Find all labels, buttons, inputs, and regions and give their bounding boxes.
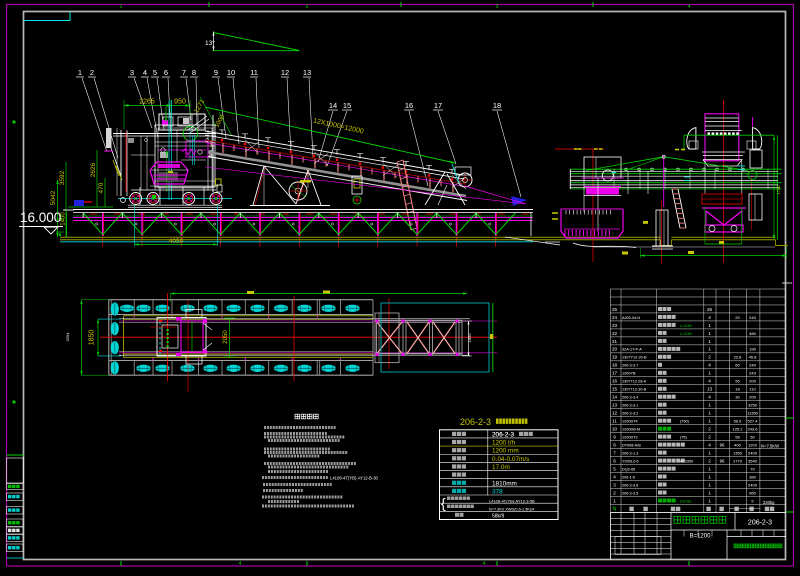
svg-text:206-3-3.7: 206-3-3.7 [622,364,638,368]
svg-text:(75): (75) [680,436,687,440]
svg-text:4: 4 [708,395,711,400]
svg-text:6: 6 [164,68,168,77]
svg-text:1200YB: 1200YB [622,372,636,376]
svg-text:DTII08-A/B: DTII08-A/B [622,444,641,448]
svg-text:1: 1 [708,482,711,487]
svg-text:L=10M: L=10M [680,324,692,328]
svg-text:L4108-4T(YB)-AY12-B-30: L4108-4T(YB)-AY12-B-30 [330,476,379,481]
svg-text:3: 3 [130,68,134,77]
svg-text:3540: 3540 [748,458,758,463]
svg-text:1200DT4: 1200DT4 [622,420,638,424]
svg-text:2: 2 [708,435,711,440]
svg-text:8: 8 [613,443,616,448]
svg-text:1: 1 [708,347,711,352]
svg-text:1450: 1450 [61,212,67,226]
svg-text:0.04-0.07m/s: 0.04-0.07m/s [492,456,529,463]
svg-text:2400: 2400 [748,450,758,455]
svg-text:15: 15 [612,387,618,392]
svg-text:1: 1 [708,450,711,455]
svg-text:15: 15 [343,101,351,110]
svg-text:11: 11 [250,68,258,77]
svg-text:4050: 4050 [169,238,184,245]
svg-text:4: 4 [708,443,711,448]
svg-text:1202: 1202 [748,443,758,448]
svg-text:17: 17 [434,101,442,110]
svg-text:11350: 11350 [747,411,759,416]
svg-text:60: 60 [735,363,740,368]
svg-text:206-2-3.4: 206-2-3.4 [622,396,638,400]
svg-text:950: 950 [174,99,186,106]
svg-text:110: 110 [749,387,756,392]
svg-text:(750): (750) [680,420,690,424]
svg-text:3250: 3250 [748,403,758,408]
svg-text:13: 13 [612,403,618,408]
svg-text:20: 20 [612,347,618,352]
svg-text:13°: 13° [205,39,215,47]
svg-text:220kg: 220kg [763,500,775,505]
svg-text:206-2-1.3: 206-2-1.3 [622,451,638,455]
svg-text:7: 7 [182,68,186,77]
svg-text:17: 17 [612,371,618,376]
svg-text:A=3350: A=3350 [680,459,693,463]
svg-text:24: 24 [612,315,618,320]
svg-text:2: 2 [306,4,309,10]
svg-text:14: 14 [612,395,618,400]
svg-text:9: 9 [214,68,218,77]
svg-text:17.0m: 17.0m [492,464,510,471]
svg-text:243.6: 243.6 [747,427,758,432]
svg-text:206-2-3: 206-2-3 [748,520,772,527]
svg-text:3: 3 [496,4,499,10]
svg-text:5042: 5042 [50,190,57,205]
svg-text:10: 10 [612,427,618,432]
svg-text:5: 5 [613,466,616,471]
svg-text:206-2-3: 206-2-3 [460,417,491,427]
svg-text:N=7.5KW: N=7.5KW [761,444,779,449]
svg-text:4: 4 [688,4,691,10]
svg-text:22.8: 22.8 [734,355,743,360]
svg-text:1: 1 [708,466,711,471]
svg-text:200: 200 [749,395,756,400]
svg-text:1307T12-30-B: 1307T12-30-B [622,388,647,392]
svg-text:1: 1 [708,411,711,416]
svg-text:1750: 1750 [776,185,781,195]
svg-text:2265: 2265 [139,99,155,106]
svg-text:2: 2 [708,458,711,463]
svg-text:N=7.3KV XWD(0.5-1.5K)/4: N=7.3KV XWD(0.5-1.5K)/4 [489,507,534,511]
svg-text:206-2-3.5: 206-2-3.5 [622,491,638,495]
svg-text:1: 1 [708,474,711,479]
svg-text:58k/9: 58k/9 [492,514,504,520]
svg-text:N: N [613,506,617,512]
svg-text:56: 56 [735,379,740,384]
svg-text:23: 23 [612,323,618,328]
svg-text:16: 16 [612,379,618,384]
svg-text:1307Y12-20-B: 1307Y12-20-B [622,356,647,360]
svg-text:45.8: 45.8 [749,355,758,360]
svg-text:50: 50 [750,435,755,440]
svg-text:25: 25 [612,307,618,312]
svg-text:480: 480 [749,331,756,336]
svg-text:1200DT2: 1200DT2 [622,436,638,440]
svg-text:4: 4 [708,379,711,384]
svg-text:206-2-3.6: 206-2-3.6 [622,483,638,487]
svg-text:2: 2 [613,490,616,495]
svg-text:B=1200: B=1200 [690,534,712,540]
svg-text:22: 22 [612,331,618,336]
svg-text:1: 1 [708,403,711,408]
svg-text:11: 11 [612,419,617,424]
svg-text:3: 3 [613,482,616,487]
svg-text:21: 21 [612,339,618,344]
svg-text:1: 1 [708,339,711,344]
svg-text:1: 1 [708,371,711,376]
svg-text:240: 240 [749,315,756,320]
svg-text:DG-6a: DG-6a [680,499,692,503]
svg-text:20: 20 [735,315,740,320]
svg-text:1200 t/h: 1200 t/h [492,440,516,447]
svg-text:378: 378 [492,488,503,495]
svg-text:13: 13 [707,387,713,392]
svg-text:4: 4 [143,68,147,77]
svg-text:Y200L2-6: Y200L2-6 [622,459,638,463]
svg-text:3294: 3294 [65,332,70,342]
svg-text:9: 9 [613,435,616,440]
svg-text:96: 96 [720,458,725,463]
svg-text:10: 10 [227,68,235,77]
svg-text:14: 14 [329,101,337,110]
svg-text:1850: 1850 [467,333,472,343]
svg-text:2: 2 [708,355,711,360]
svg-text:125.2: 125.2 [732,427,743,432]
svg-text:96: 96 [720,443,725,448]
svg-text:30: 30 [735,395,740,400]
svg-text:16: 16 [405,101,413,110]
svg-text:26: 26 [707,307,713,312]
svg-text:206-2-3.1: 206-2-3.1 [622,404,638,408]
svg-text:206-2-3: 206-2-3 [492,431,514,438]
svg-text:58: 58 [735,435,740,440]
svg-text:18: 18 [493,101,501,110]
svg-text:12: 12 [612,411,618,416]
svg-text:4: 4 [708,315,711,320]
svg-text:2: 2 [90,68,94,77]
svg-text:1810mm: 1810mm [492,480,517,487]
svg-text:5: 5 [153,68,157,77]
svg-text:4: 4 [708,363,711,368]
svg-text:1: 1 [613,498,616,503]
svg-text:400: 400 [734,443,741,448]
svg-text:2: 2 [708,427,711,432]
svg-text:18: 18 [612,363,618,368]
svg-text:1: 1 [708,323,711,328]
svg-text:190: 190 [749,347,756,352]
svg-text:12: 12 [281,68,289,77]
svg-text:206-2-3.2: 206-2-3.2 [622,412,638,416]
svg-text:240: 240 [749,363,756,368]
svg-text:960: 960 [749,490,756,495]
svg-text:32A-1T-P-A: 32A-1T-P-A [622,348,642,352]
svg-text:243: 243 [749,371,756,376]
svg-text:56.5: 56.5 [734,419,743,424]
svg-text:2400: 2400 [748,482,758,487]
svg-text:L=10M: L=10M [680,332,692,336]
svg-text:7: 7 [613,450,616,455]
svg-text:1: 1 [120,4,123,10]
svg-text:1770: 1770 [733,458,743,463]
svg-text:1: 1 [708,498,711,503]
svg-text:1850: 1850 [89,330,96,346]
svg-text:2626: 2626 [90,162,97,177]
svg-text:1: 1 [708,419,711,424]
svg-text:6: 6 [613,458,616,463]
svg-text:16.000: 16.000 [20,210,61,225]
svg-text:70: 70 [750,466,755,471]
svg-text:AJ05-04-N: AJ05-04-N [622,316,640,320]
svg-text:18: 18 [735,387,740,392]
svg-text:1200DB-M: 1200DB-M [622,428,640,432]
svg-text:2050: 2050 [223,330,229,344]
svg-text:4: 4 [613,474,616,479]
svg-text:200: 200 [749,379,756,384]
svg-text:19: 19 [612,355,618,360]
svg-text:8: 8 [192,68,196,77]
svg-text:206-1-6: 206-1-6 [622,475,635,479]
svg-text:4: 4 [483,561,486,567]
svg-text:4: 4 [239,561,242,567]
svg-text:1307T12-28-A: 1307T12-28-A [622,380,647,384]
svg-text:1350: 1350 [733,450,743,455]
svg-text:380: 380 [749,474,756,479]
svg-text:527.4: 527.4 [747,419,758,424]
svg-text:1: 1 [708,331,711,336]
svg-text:13: 13 [303,68,311,77]
svg-text:470: 470 [98,182,105,193]
svg-text:DQ2-65: DQ2-65 [622,467,635,471]
svg-text:3592: 3592 [59,170,66,185]
svg-text:L4108-4T(YB)-AY12-3-5B: L4108-4T(YB)-AY12-3-5B [489,498,535,503]
svg-text:{: { [441,495,446,511]
svg-text:1: 1 [708,490,711,495]
svg-text:1200 mm: 1200 mm [492,448,519,455]
svg-text:1: 1 [78,68,82,77]
